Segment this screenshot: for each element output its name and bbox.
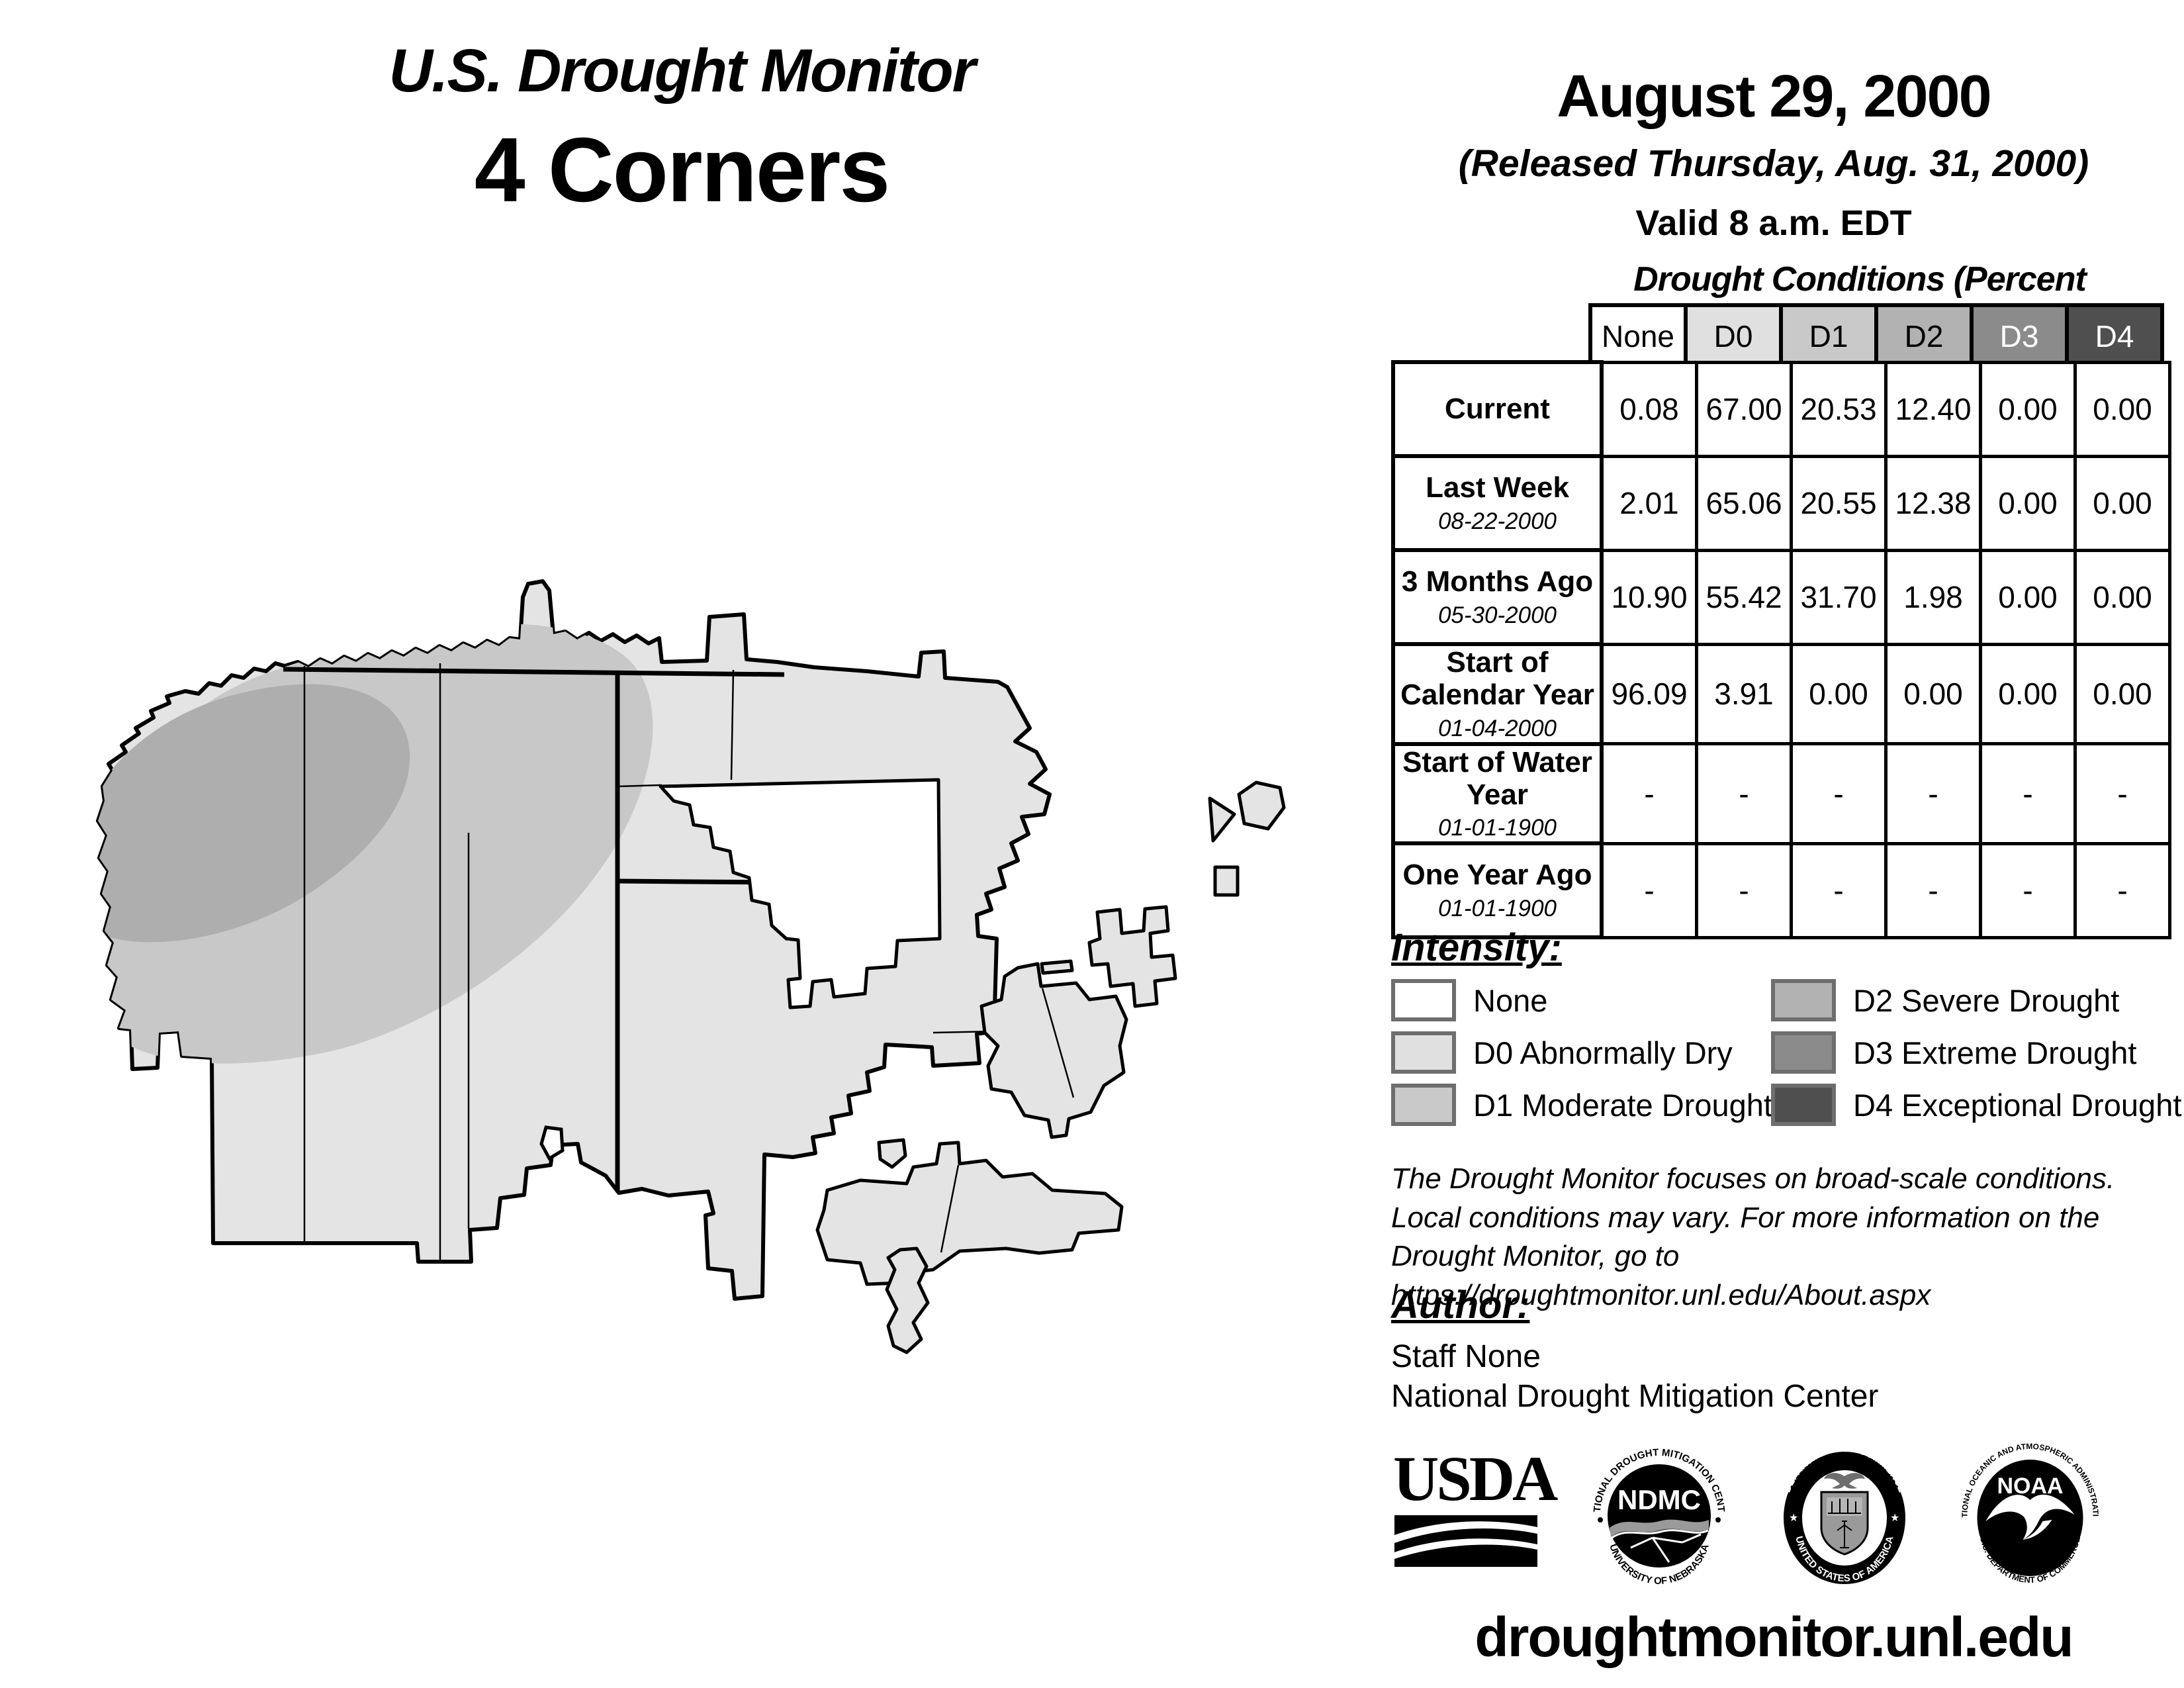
value-cell: - <box>1792 744 1886 844</box>
legend-swatch <box>1771 1084 1836 1126</box>
legend-swatch <box>1391 979 1456 1021</box>
value-cell: 20.55 <box>1792 456 1886 550</box>
svg-text:★: ★ <box>1789 1513 1798 1524</box>
value-cell: 55.42 <box>1697 550 1792 644</box>
release-date: (Released Thursday, Aug. 31, 2000) <box>1403 142 2144 185</box>
value-cell: - <box>1602 744 1697 844</box>
table-row: Start of Calendar Year01-04-200096.093.9… <box>1393 644 2170 744</box>
value-cell: 65.06 <box>1697 456 1792 550</box>
value-cell: 0.00 <box>2075 456 2170 550</box>
legend-label: D0 Abnormally Dry <box>1473 1035 1733 1071</box>
legend-heading: Intensity: <box>1391 925 1562 970</box>
row-date: 01-04-2000 <box>1399 716 1596 742</box>
value-cell: - <box>2075 843 2170 937</box>
table-row: 3 Months Ago05-30-200010.9055.4231.701.9… <box>1393 550 2170 644</box>
report-title: U.S. Drought Monitor <box>199 36 1165 106</box>
value-cell: 0.00 <box>1981 362 2075 456</box>
island-turtle <box>981 964 1126 1137</box>
value-cell: 1.98 <box>1886 550 1981 644</box>
island-south-blob <box>887 1248 928 1352</box>
column-header-d4: D4 <box>2067 305 2162 367</box>
row-label-text: Current <box>1399 393 1596 425</box>
legend-column-left: NoneD0 Abnormally DryD1 Moderate Drought <box>1391 978 1762 1135</box>
legend-label: D3 Extreme Drought <box>1853 1035 2136 1071</box>
website-url: droughtmonitor.unl.edu <box>1403 1605 2144 1669</box>
column-header-d2: D2 <box>1876 305 1972 367</box>
column-header-none: None <box>1590 305 1686 367</box>
drought-map-svg <box>46 568 1304 1370</box>
value-cell: - <box>1981 744 2075 844</box>
value-cell: 12.38 <box>1886 456 1981 550</box>
drought-monitor-report: { "header": { "title_line1": "U.S. Droug… <box>0 0 2184 1688</box>
row-label: Current <box>1393 362 1602 456</box>
legend-swatch <box>1391 1084 1456 1126</box>
noaa-logo: NOAA NATIONAL OCEANIC AND ATMOSPHERIC AD… <box>1952 1442 2108 1597</box>
island-square <box>1215 867 1238 895</box>
noaa-logo-svg: NOAA NATIONAL OCEANIC AND ATMOSPHERIC AD… <box>1952 1442 2108 1594</box>
row-label: Last Week08-22-2000 <box>1393 456 1602 550</box>
author-heading: Author: <box>1391 1283 1529 1327</box>
legend-label: D1 Moderate Drought <box>1473 1087 1772 1123</box>
value-cell: - <box>1602 843 1697 937</box>
table-row: Current0.0867.0020.5312.400.000.00 <box>1393 362 2170 456</box>
row-label-text: Last Week <box>1399 471 1596 504</box>
noaa-logo-text: NOAA <box>1997 1474 2063 1499</box>
table-row: Last Week08-22-20002.0165.0620.5512.380.… <box>1393 456 2170 550</box>
value-cell: 12.40 <box>1886 362 1981 456</box>
legend-item: D3 Extreme Drought <box>1771 1031 2142 1074</box>
value-cell: 96.09 <box>1602 644 1697 744</box>
drought-table: Current0.0867.0020.5312.400.000.00Last W… <box>1391 360 2171 939</box>
doc-seal-svg: ★ ★ DEPARTMENT OF COMMERCE UNITED STATES… <box>1768 1442 1921 1594</box>
department-of-commerce-seal: ★ ★ DEPARTMENT OF COMMERCE UNITED STATES… <box>1768 1442 1921 1597</box>
legend-item: D1 Moderate Drought <box>1391 1083 1762 1127</box>
row-label: Start of Calendar Year01-04-2000 <box>1393 644 1602 744</box>
row-label-text: 3 Months Ago <box>1399 565 1596 598</box>
island-hook <box>879 1140 905 1167</box>
value-cell: - <box>1697 843 1792 937</box>
value-cell: 2.01 <box>1602 456 1697 550</box>
value-cell: 0.00 <box>1981 456 2075 550</box>
usda-swoosh-icon <box>1393 1515 1539 1568</box>
value-cell: - <box>1981 843 2075 937</box>
value-cell: - <box>1886 843 1981 937</box>
island-bar <box>1042 961 1072 973</box>
row-date: 01-01-1900 <box>1399 896 1596 922</box>
author-organization: National Drought Mitigation Center <box>1391 1378 1878 1415</box>
legend-swatch <box>1771 1031 1836 1074</box>
row-label: One Year Ago01-01-1900 <box>1393 843 1602 937</box>
row-label-text: Start of Calendar Year <box>1399 646 1596 712</box>
value-cell: 0.00 <box>2075 362 2170 456</box>
table-row: One Year Ago01-01-1900------ <box>1393 843 2170 937</box>
ndmc-logo-text: NDMC <box>1617 1484 1701 1515</box>
legend-label: D4 Exceptional Drought <box>1853 1087 2181 1123</box>
column-header-d1: D1 <box>1781 305 1876 367</box>
value-cell: 20.53 <box>1792 362 1886 456</box>
row-date: 01-01-1900 <box>1399 815 1596 841</box>
usda-logo-text: USDA <box>1393 1442 1539 1515</box>
island-triangle <box>1210 798 1234 841</box>
island-south-cluster <box>817 1143 1122 1284</box>
legend-label: D2 Severe Drought <box>1853 982 2119 1019</box>
row-date: 05-30-2000 <box>1399 602 1596 629</box>
value-cell: 0.00 <box>1792 644 1886 744</box>
usda-logo: USDA <box>1393 1442 1539 1571</box>
row-date: 08-22-2000 <box>1399 508 1596 535</box>
legend-column-right: D2 Severe DroughtD3 Extreme DroughtD4 Ex… <box>1771 978 2142 1135</box>
row-label: Start of Water Year01-01-1900 <box>1393 744 1602 844</box>
legend-swatch <box>1391 1031 1456 1074</box>
disclaimer-line1: The Drought Monitor focuses on broad-sca… <box>1391 1160 2172 1199</box>
value-cell: 0.00 <box>2075 644 2170 744</box>
legend-label: None <box>1473 982 1547 1019</box>
value-cell: - <box>1886 744 1981 844</box>
legend-item: D2 Severe Drought <box>1771 978 2142 1022</box>
legend-swatch <box>1771 979 1836 1021</box>
island-cross-cluster <box>1089 907 1175 1006</box>
row-label: 3 Months Ago05-30-2000 <box>1393 550 1602 644</box>
ndmc-logo-svg: NDMC NATIONAL DROUGHT MITIGATION CENTER … <box>1583 1442 1735 1594</box>
report-date: August 29, 2000 <box>1403 63 2144 131</box>
island-blob-ne <box>1239 782 1284 829</box>
legend-item: D0 Abnormally Dry <box>1391 1031 1762 1074</box>
row-label-text: Start of Water Year <box>1399 746 1596 812</box>
value-cell: - <box>2075 744 2170 844</box>
drought-table-header: NoneD0D1D2D3D4 <box>1588 303 2164 369</box>
value-cell: 0.08 <box>1602 362 1697 456</box>
value-cell: - <box>1792 843 1886 937</box>
value-cell: 0.00 <box>1981 644 2075 744</box>
row-label-text: One Year Ago <box>1399 859 1596 891</box>
value-cell: 3.91 <box>1697 644 1792 744</box>
value-cell: - <box>1697 744 1792 844</box>
region-name: 4 Corners <box>199 118 1165 223</box>
value-cell: 0.00 <box>1981 550 2075 644</box>
legend-item: None <box>1391 978 1762 1022</box>
value-cell: 10.90 <box>1602 550 1697 644</box>
svg-text:★: ★ <box>1890 1513 1899 1524</box>
author-name: Staff None <box>1391 1338 1541 1375</box>
disclaimer-line2: Local conditions may vary. For more info… <box>1391 1199 2172 1238</box>
value-cell: 0.00 <box>1886 644 1981 744</box>
value-cell: 67.00 <box>1697 362 1792 456</box>
ndmc-logo: NDMC NATIONAL DROUGHT MITIGATION CENTER … <box>1583 1442 1735 1597</box>
column-header-d3: D3 <box>1972 305 2067 367</box>
valid-time: Valid 8 a.m. EDT <box>1403 203 2144 244</box>
value-cell: 31.70 <box>1792 550 1886 644</box>
column-header-row: NoneD0D1D2D3D4 <box>1590 305 2162 367</box>
date-block: August 29, 2000 (Released Thursday, Aug.… <box>1403 63 2144 244</box>
table-row: Start of Water Year01-01-1900------ <box>1393 744 2170 844</box>
legend-item: D4 Exceptional Drought <box>1771 1083 2142 1127</box>
drought-map <box>46 568 1304 1370</box>
column-header-d0: D0 <box>1686 305 1781 367</box>
value-cell: 0.00 <box>2075 550 2170 644</box>
report-title-block: U.S. Drought Monitor 4 Corners <box>199 36 1165 223</box>
